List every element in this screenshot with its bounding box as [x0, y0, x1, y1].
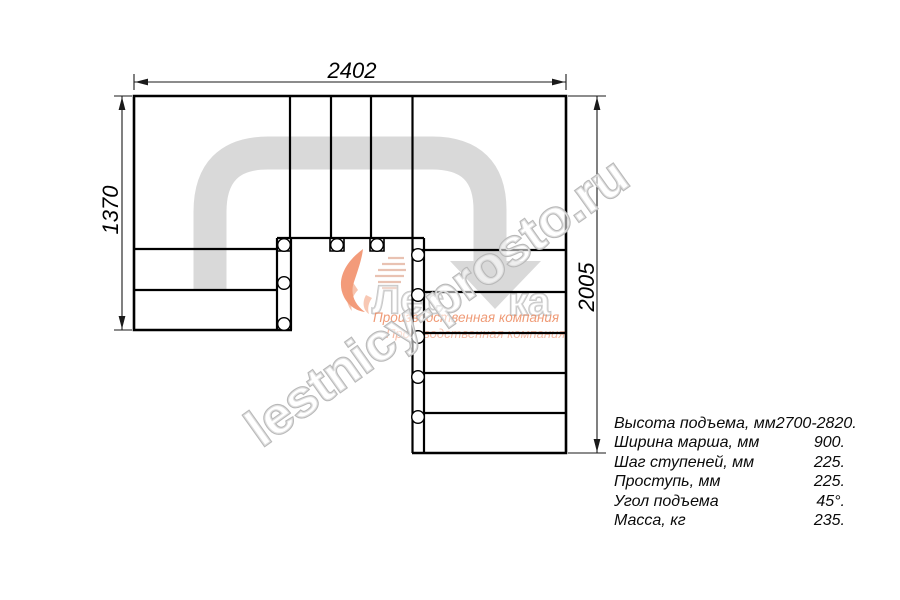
spec-value: 900. [814, 433, 845, 452]
fastener-circle [412, 249, 425, 262]
arrow-right-icon [552, 79, 565, 86]
fastener-circle [371, 239, 384, 252]
spec-value: 45°. [816, 492, 845, 511]
flame-icon [341, 249, 365, 312]
fastener-circle [278, 318, 291, 331]
spec-row: Шаг ступеней, мм 225. [614, 453, 845, 472]
spec-value: 2700-2820. [776, 414, 857, 433]
arrow-down-icon [594, 439, 601, 452]
spec-row: Масса, кг 235. [614, 511, 845, 530]
arrow-down-icon [119, 316, 126, 329]
fastener-circle [278, 239, 291, 252]
spec-label: Шаг ступеней, мм [614, 453, 754, 472]
specs-table: Высота подъема, мм 2700-2820. Ширина мар… [614, 414, 845, 530]
fastener-circle [412, 411, 425, 424]
spec-label: Угол подъема [614, 492, 719, 511]
arrow-up-icon [594, 97, 601, 110]
spec-label: Масса, кг [614, 511, 686, 530]
arrow-up-icon [119, 97, 126, 110]
dim-top-width: 2402 [327, 58, 377, 83]
spec-row: Проступь, мм 225. [614, 472, 845, 491]
flame-icon [364, 295, 372, 314]
spec-label: Высота подъема, мм [614, 414, 776, 433]
arrow-left-icon [135, 79, 148, 86]
spec-label: Ширина марша, мм [614, 433, 759, 452]
fastener-circle [412, 371, 425, 384]
spec-value: 235. [814, 511, 845, 530]
spec-label: Проступь, мм [614, 472, 720, 491]
fastener-circle [331, 239, 344, 252]
spec-row: Ширина марша, мм 900. [614, 433, 845, 452]
spec-row: Высота подъема, мм 2700-2820. [614, 414, 845, 433]
dim-left-height: 1370 [98, 185, 123, 235]
spec-value: 225. [814, 453, 845, 472]
blueprint-canvas: Лес ка Производственная компания Произво… [0, 0, 900, 600]
spec-value: 225. [814, 472, 845, 491]
spec-row: Угол подъема 45°. [614, 492, 845, 511]
fastener-circle [278, 277, 291, 290]
dim-right-height: 2005 [574, 262, 599, 313]
